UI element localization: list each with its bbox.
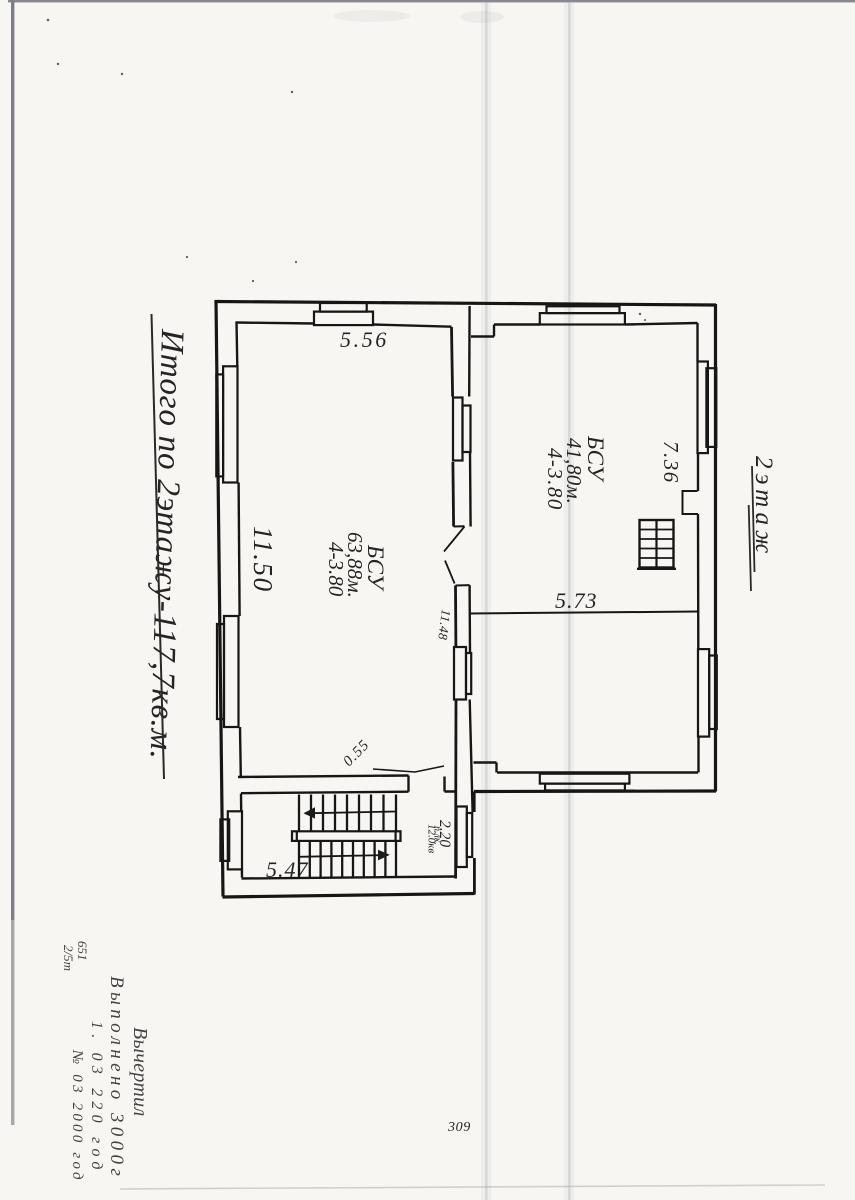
svg-text:5.56: 5.56 [340, 327, 389, 352]
svg-text:309: 309 [447, 1120, 471, 1135]
svg-text:12.0кв: 12.0кв [426, 824, 438, 853]
svg-text:5.47: 5.47 [266, 857, 309, 882]
svg-text:11.48: 11.48 [435, 609, 454, 641]
svg-text:4-3.80: 4-3.80 [543, 448, 567, 511]
svg-text:№ 03 2000 год: № 03 2000 год [69, 1049, 85, 1183]
svg-text:1. 03 220 год: 1. 03 220 год [88, 1021, 105, 1175]
svg-text:Выполнено 3000г: Выполнено 3000г [106, 976, 127, 1180]
svg-text:Итого по 2этажу-117,7кв.м.: Итого по 2этажу-117,7кв.м. [143, 328, 190, 760]
svg-text:4-3.80: 4-3.80 [324, 542, 348, 597]
svg-text:651: 651 [75, 941, 90, 961]
svg-text:5.73: 5.73 [555, 588, 598, 613]
svg-text:7.36: 7.36 [659, 441, 683, 484]
svg-text:2/5т: 2/5т [61, 945, 76, 971]
svg-text:11.50: 11.50 [248, 526, 278, 593]
svg-text:Вычертил: Вычертил [129, 1027, 151, 1116]
svg-text:0.55: 0.55 [340, 737, 373, 770]
